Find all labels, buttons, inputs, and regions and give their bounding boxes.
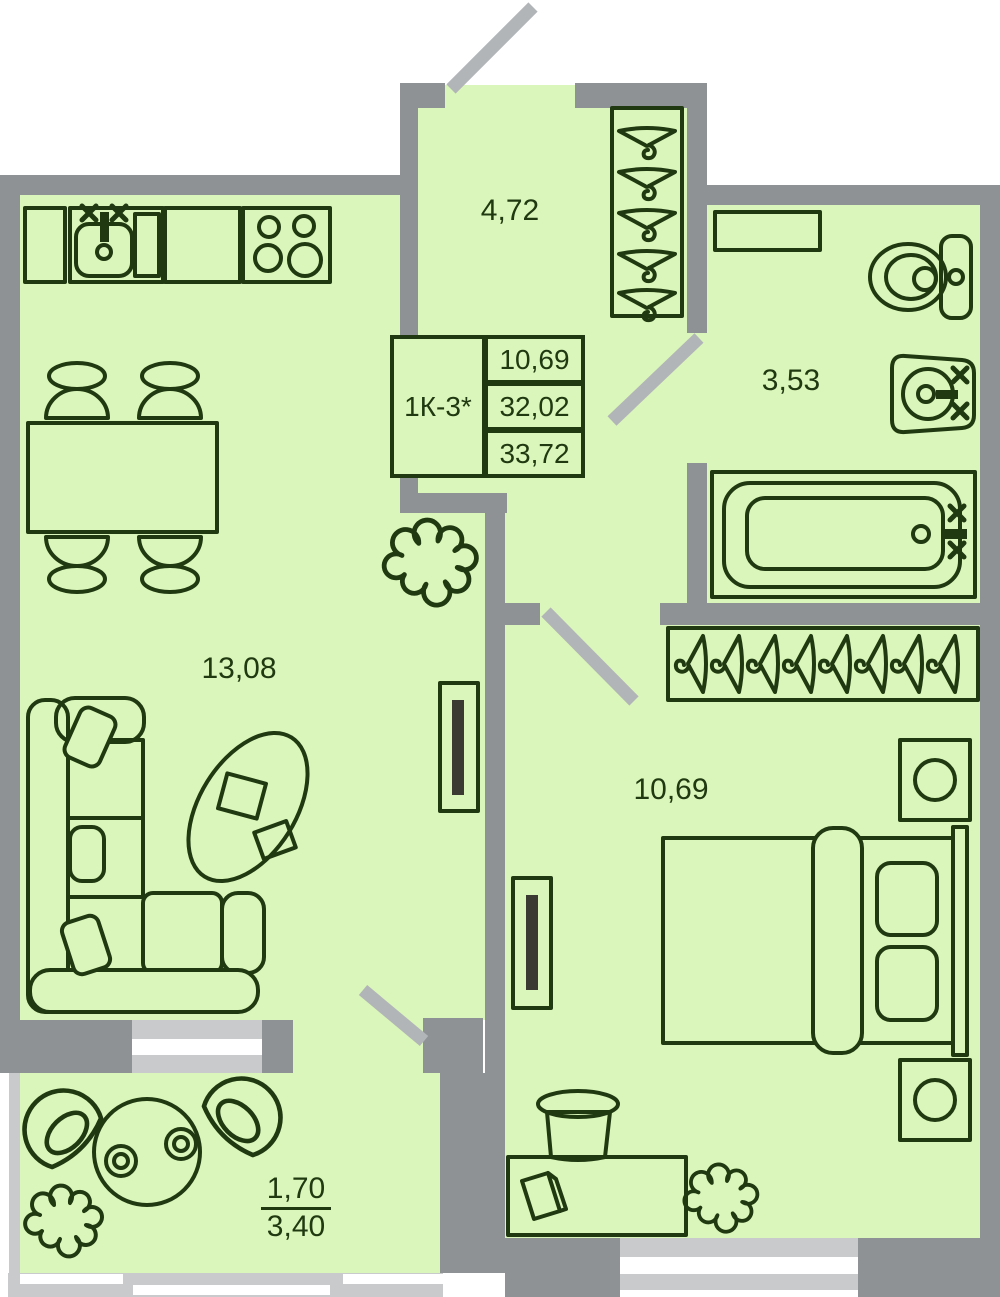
unit-info-table: 1К-3* 10,69 32,02 33,72	[390, 335, 585, 478]
room-label-bedroom: 10,69	[611, 773, 731, 807]
pillow	[877, 947, 937, 1020]
window-bedroom	[620, 1238, 858, 1290]
room-label-kitchen-living: 13,08	[179, 652, 299, 686]
room-label-hall: 4,72	[450, 194, 570, 228]
room-label-balcony: 1,70 3,40	[236, 1172, 356, 1244]
sofa-cushion	[70, 827, 104, 881]
unit-area-total: 33,72	[485, 430, 581, 474]
entrance-door-leaf	[451, 7, 533, 89]
balcony-area-coefficient: 1,70	[261, 1172, 331, 1210]
headboard	[953, 827, 967, 1055]
floorplan-page: 4,72 3,53 13,08 10,69 1,70 3,40 1К-3* 10…	[0, 0, 1000, 1297]
unit-area-apartment: 32,02	[485, 383, 581, 430]
window-living-balcony	[132, 1020, 262, 1073]
unit-code: 1К-3*	[394, 339, 485, 474]
unit-area-living: 10,69	[485, 339, 581, 383]
pillow	[877, 863, 937, 935]
balcony-area-full: 3,40	[267, 1210, 325, 1244]
room-label-bathroom: 3,53	[731, 364, 851, 398]
balcony-glazing-bottom	[8, 1273, 443, 1297]
balcony-glazing-left	[0, 1073, 20, 1273]
